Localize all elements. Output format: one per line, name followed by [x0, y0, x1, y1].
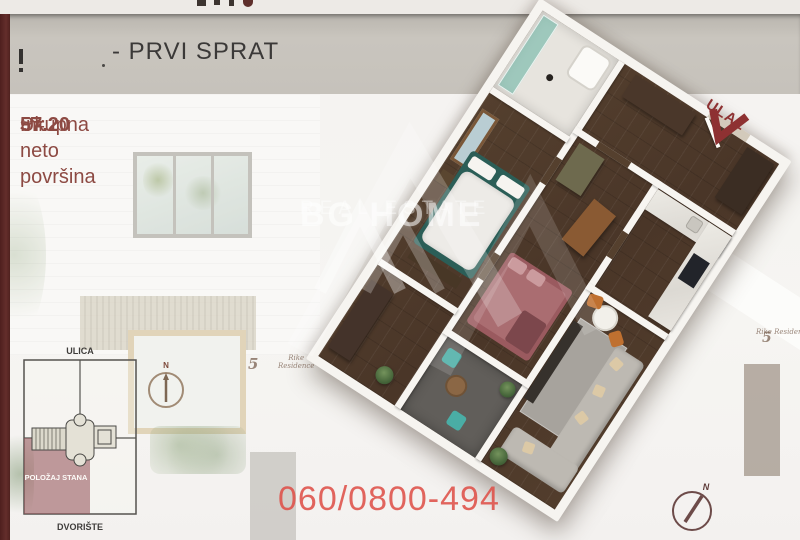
flyer-root: Rike Residence 5 Rike Residence 5 - PRVI…	[0, 0, 800, 540]
area-exponent: 2	[20, 112, 27, 138]
north-label: N	[163, 361, 169, 370]
north-label: N	[703, 482, 710, 492]
annex-block	[94, 426, 116, 448]
compass-north-icon: N	[664, 478, 722, 538]
left-accent-stripe	[0, 14, 10, 540]
position-label: POLOŽAJ STANA	[25, 473, 88, 482]
area-unit: m	[26, 112, 43, 138]
cutoff-glyph	[19, 49, 23, 64]
cutoff-glyph	[102, 64, 105, 67]
compass-north-icon: N	[140, 358, 192, 414]
courtyard-label: DVORIŠTE	[57, 521, 103, 532]
cutoff-glyph	[229, 0, 234, 6]
core-bump	[74, 414, 86, 426]
top-strip	[0, 0, 800, 14]
cutoff-glyph	[197, 0, 206, 6]
title-banner: - PRVI SPRAT	[0, 14, 800, 94]
phone-number: 060/0800-494	[278, 480, 500, 519]
entrance-arrow-icon	[702, 108, 750, 150]
street-label: ULICA	[66, 346, 94, 356]
cutoff-glyph	[243, 0, 253, 7]
cutoff-glyph	[19, 68, 23, 72]
site-plan: ULICA POLOŽAJ STANA DVORIŠTE	[16, 342, 144, 538]
compass-needle	[685, 496, 702, 522]
stairs-block	[32, 428, 66, 450]
arrow-check	[707, 110, 744, 144]
page-title: - PRVI SPRAT	[112, 38, 279, 66]
core-bump	[74, 454, 86, 466]
cutoff-glyph	[214, 0, 220, 5]
